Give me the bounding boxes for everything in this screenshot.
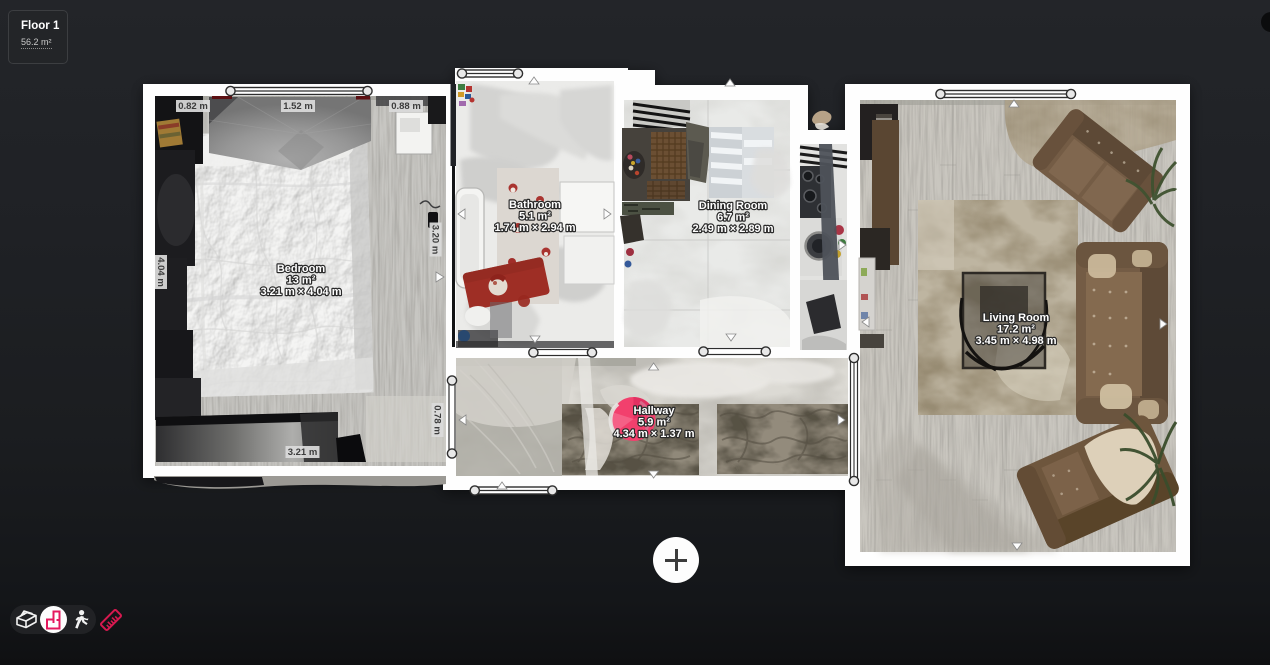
svg-text:Bathroom: Bathroom [509,199,561,211]
svg-text:1.74 m × 2.94 m: 1.74 m × 2.94 m [494,222,575,234]
svg-text:1.52 m: 1.52 m [283,101,313,112]
svg-text:4.04 m: 4.04 m [155,257,166,287]
svg-text:3.21 m × 4.04 m: 3.21 m × 4.04 m [260,286,341,298]
svg-text:Bedroom: Bedroom [277,263,326,275]
svg-text:2.49 m × 2.89 m: 2.49 m × 2.89 m [692,223,773,235]
svg-text:4.34 m × 1.37 m: 4.34 m × 1.37 m [613,428,694,440]
svg-text:6.7 m²: 6.7 m² [717,212,749,224]
svg-text:17.2 m²: 17.2 m² [997,324,1035,336]
svg-text:0.88 m: 0.88 m [391,101,421,112]
svg-text:Hallway: Hallway [634,405,676,417]
svg-text:3.20 m: 3.20 m [430,225,441,255]
svg-text:13 m²: 13 m² [287,275,316,287]
svg-text:5.1 m²: 5.1 m² [519,211,551,223]
svg-text:3.21 m: 3.21 m [288,447,318,458]
svg-text:0.82 m: 0.82 m [178,101,208,112]
svg-text:3.45 m × 4.98 m: 3.45 m × 4.98 m [975,335,1056,347]
svg-text:Living Room: Living Room [983,312,1050,324]
svg-text:5.9 m²: 5.9 m² [638,417,670,429]
svg-text:Dining Room: Dining Room [699,200,768,212]
svg-text:0.78 m: 0.78 m [432,405,443,435]
